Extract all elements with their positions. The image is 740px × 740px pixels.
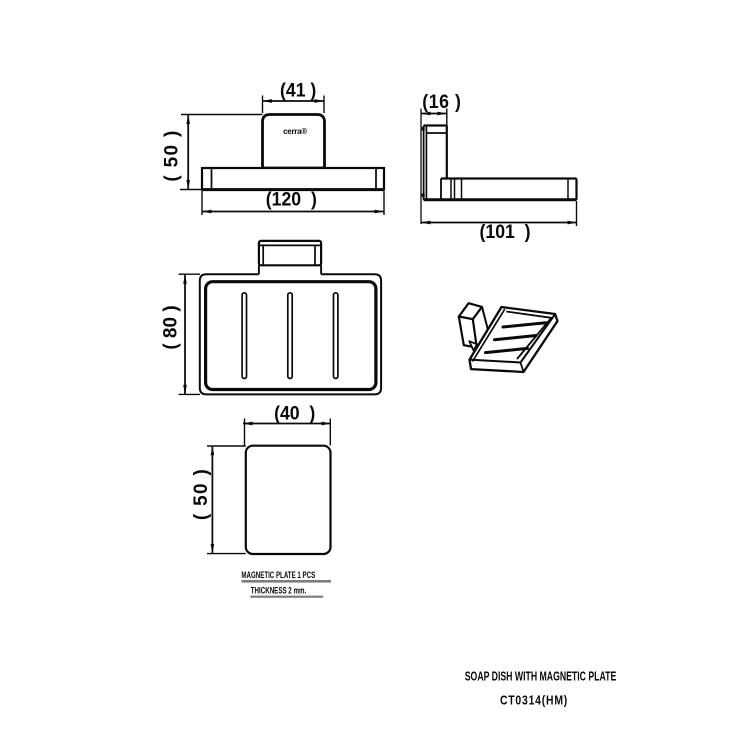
svg-text:SOAP DISH WITH MAGNETIC PLATE: SOAP DISH WITH MAGNETIC PLATE [465,670,617,684]
svg-text:THICKNESS 2 mm.: THICKNESS 2 mm. [251,585,306,595]
svg-text:( 50 ): ( 50 ) [191,468,212,520]
svg-text:MAGNETIC PLATE 1 PCS: MAGNETIC PLATE 1 PCS [241,570,315,581]
svg-text:(41 ): (41 ) [280,79,316,101]
svg-text:(101 ): (101 ) [480,220,531,242]
svg-text:( 50 ): ( 50 ) [162,129,183,181]
svg-text:( 80 ): ( 80 ) [161,305,182,349]
svg-text:(40 ): (40 ) [274,402,315,424]
svg-text:CT0314(HM): CT0314(HM) [500,693,568,707]
svg-text:(120 ): (120 ) [266,188,317,210]
svg-text:cerra®: cerra® [283,127,307,136]
svg-text:(16 ): (16 ) [422,90,461,112]
